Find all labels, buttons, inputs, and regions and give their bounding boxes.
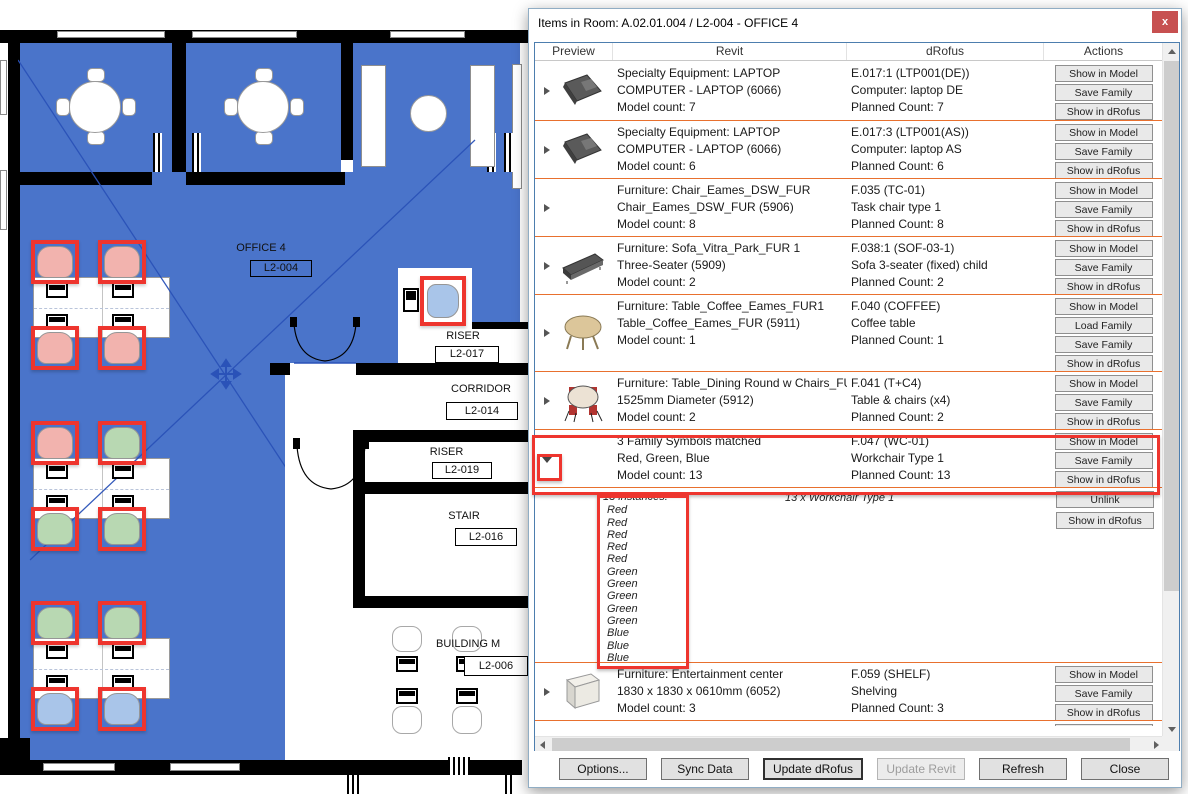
revit-line: Model count: 2 — [617, 409, 847, 426]
chair-annotation-box — [31, 687, 79, 731]
revit-line: Furniture: Chair_Eames_DSW_FUR — [617, 182, 847, 199]
drofus-line: Planned Count: 2 — [851, 274, 1044, 291]
room-number-riser2: L2-019 — [432, 462, 492, 479]
window-bottom-1 — [43, 763, 115, 771]
round-table-1 — [69, 81, 121, 133]
save-family-button[interactable]: Save Family — [1055, 143, 1153, 160]
laptop-icon — [396, 656, 418, 672]
drofus-line: F.041 (T+C4) — [851, 375, 1044, 392]
shelf-preview-icon — [561, 670, 605, 712]
dialog-titlebar[interactable]: Items in Room: A.02.01.004 / L2-004 - OF… — [529, 9, 1181, 39]
window-top-2 — [192, 31, 297, 38]
row-expander-icon[interactable] — [544, 397, 550, 405]
expanded-actions: Unlink Show in dRofus — [1056, 491, 1154, 529]
gray-chair — [392, 626, 422, 652]
laptop-preview-icon — [561, 128, 605, 168]
vertical-scroll-thumb[interactable] — [1164, 61, 1179, 591]
drofus-line: Task chair type 1 — [851, 199, 1044, 216]
chair-annotation-box — [31, 421, 79, 465]
item-row-sofa: Furniture: Sofa_Vitra_Park_FUR 1Three-Se… — [535, 236, 1163, 294]
chair-annotation-box — [31, 326, 79, 370]
coffee-table-preview-icon — [561, 311, 605, 353]
drofus-line: F.059 (SHELF) — [851, 666, 1044, 683]
table1-chair-e — [122, 98, 136, 116]
drofus-line: Planned Count: 8 — [851, 216, 1044, 233]
row-expander-icon[interactable] — [544, 146, 550, 154]
column-header-preview[interactable]: Preview — [535, 43, 613, 60]
door-pocket-2 — [192, 133, 201, 172]
item-row-laptop-as: Specialty Equipment: LAPTOPCOMPUTER - LA… — [535, 120, 1163, 178]
expander-annotation-box — [537, 454, 562, 481]
table2-chair-e — [290, 98, 304, 116]
column-header-revit[interactable]: Revit — [613, 43, 847, 60]
row-expander-icon[interactable] — [544, 329, 550, 337]
mullion-3 — [357, 775, 359, 794]
table1-chair-n — [87, 68, 105, 82]
drofus-line: Planned Count: 2 — [851, 409, 1044, 426]
table1-chair-w — [56, 98, 70, 116]
close-button[interactable]: x — [1152, 11, 1178, 33]
matched-row-annotation-box — [532, 435, 1160, 495]
drofus-line: Shelving — [851, 683, 1044, 700]
revit-line: 1525mm Diameter (5912) — [617, 392, 847, 409]
laptop-icon — [403, 288, 419, 312]
window-bottom-2 — [170, 763, 240, 771]
options-button[interactable]: Options... — [559, 758, 647, 780]
drofus-line: Computer: laptop AS — [851, 141, 1044, 158]
drofus-line: F.038:1 (SOF-03-1) — [851, 240, 1044, 257]
scroll-down-button[interactable] — [1163, 720, 1180, 737]
revit-line: Model count: 6 — [617, 158, 847, 175]
window-top-3 — [390, 31, 465, 38]
room-label-stair: STAIR — [400, 510, 528, 522]
save-family-button[interactable]: Save Family — [1055, 84, 1153, 101]
laptop-icon — [112, 463, 134, 479]
chair-annotation-box — [98, 507, 146, 551]
drofus-line: Computer: laptop DE — [851, 82, 1044, 99]
revit-line: Table_Coffee_Eames_FUR (5911) — [617, 315, 847, 332]
wall-room-divider-1 — [172, 30, 186, 172]
horizontal-scroll-thumb[interactable] — [552, 738, 1130, 751]
scroll-up-button[interactable] — [1163, 43, 1180, 60]
show-in-drofus-button[interactable]: Show in dRofus — [1055, 355, 1153, 372]
revit-line: Model count: 2 — [617, 274, 847, 291]
revit-line: Furniture: Table_Dining Round w Chairs_F… — [617, 375, 847, 392]
wall-room-divider-2 — [341, 30, 353, 160]
room-label-riser2: RISER — [365, 446, 528, 458]
table2-chair-s — [255, 131, 273, 145]
drofus-line: Planned Count: 6 — [851, 158, 1044, 175]
revit-line: COMPUTER - LAPTOP (6066) — [617, 141, 847, 158]
dining-table-preview-icon — [561, 379, 605, 423]
drofus-line: Planned Count: 7 — [851, 99, 1044, 116]
show-in-drofus-button[interactable]: Show in dRofus — [1055, 103, 1153, 120]
room-label-riser1: RISER — [398, 330, 528, 342]
corridor-wall-top — [356, 363, 528, 375]
revit-line: Model count: 7 — [617, 99, 847, 116]
show-in-drofus-button[interactable]: Show in dRofus — [1055, 278, 1153, 295]
floor-plan: OFFICE 4 L2-004 RISER L2-017 CORRIDOR L2… — [0, 0, 528, 794]
show-in-model-button[interactable]: Show in Model — [1055, 65, 1153, 82]
sofa-left — [361, 65, 386, 167]
show-in-model-button[interactable]: Show in Model — [1055, 124, 1153, 141]
show-in-drofus-button[interactable]: Show in dRofus — [1055, 220, 1153, 237]
drofus-line: F.035 (TC-01) — [851, 182, 1044, 199]
row-expander-icon[interactable] — [544, 688, 550, 696]
room-number-building-m: L2-006 — [464, 656, 528, 676]
drofus-line: Sofa 3-seater (fixed) child — [851, 257, 1044, 274]
show-in-model-button[interactable]: Show in Model — [1055, 298, 1153, 315]
gray-chair — [392, 706, 422, 734]
sync-data-button[interactable]: Sync Data — [661, 758, 749, 780]
chair-annotation-box — [420, 276, 466, 326]
room-number-riser1: L2-017 — [435, 346, 499, 363]
item-row-dining-table: Furniture: Table_Dining Round w Chairs_F… — [535, 371, 1163, 429]
chair-annotation-box — [31, 507, 79, 551]
table2-chair-n — [255, 68, 273, 82]
revit-line: Model count: 8 — [617, 216, 847, 233]
close-dialog-button[interactable]: Close — [1081, 758, 1169, 780]
horizontal-scrollbar[interactable] — [535, 736, 1164, 752]
door-pocket-4 — [504, 133, 513, 172]
drofus-line: Planned Count: 1 — [851, 332, 1044, 349]
stair-wall-bottom — [353, 596, 528, 608]
revit-line: Three-Seater (5909) — [617, 257, 847, 274]
room-label-building-m: BUILDING M — [436, 638, 536, 650]
list-header: Preview Revit dRofus Actions — [535, 43, 1163, 61]
room-label-corridor: CORRIDOR — [436, 383, 526, 395]
show-in-drofus-button[interactable]: Show in dRofus — [1055, 162, 1153, 179]
room-number-corridor: L2-014 — [446, 402, 518, 420]
scroll-left-button[interactable] — [540, 741, 545, 749]
drofus-line: Coffee table — [851, 315, 1044, 332]
drofus-line: E.017:1 (LTP001(DE)) — [851, 65, 1044, 82]
item-row-laptop-de: Specialty Equipment: LAPTOPCOMPUTER - LA… — [535, 62, 1163, 120]
save-family-button[interactable]: Save Family — [1055, 336, 1153, 353]
revit-line: Specialty Equipment: LAPTOP — [617, 65, 847, 82]
drofus-line: E.017:3 (LTP001(AS)) — [851, 124, 1044, 141]
laptop-preview-icon — [561, 69, 605, 109]
window-left-2 — [0, 170, 7, 230]
stair-wall-mid — [365, 482, 528, 494]
revit-line: COMPUTER - LAPTOP (6066) — [617, 82, 847, 99]
laptop-icon — [46, 282, 68, 298]
revit-line: 1830 x 1830 x 0610mm (6052) — [617, 683, 847, 700]
sofa-preview-icon — [561, 244, 605, 284]
save-family-button[interactable]: Save Family — [1055, 685, 1153, 702]
room-label-office4: OFFICE 4 — [196, 242, 326, 254]
vertical-scrollbar[interactable] — [1162, 43, 1179, 737]
laptop-icon — [112, 282, 134, 298]
table2-chair-w — [224, 98, 238, 116]
show-in-drofus-button[interactable]: Show in dRofus — [1055, 704, 1153, 721]
mullion-2 — [352, 775, 354, 794]
show-in-model-button[interactable]: Show in Model — [1055, 666, 1153, 683]
instances-annotation-box — [597, 495, 689, 669]
revit-line: Specialty Equipment: LAPTOP — [617, 124, 847, 141]
laptop-icon — [112, 643, 134, 659]
laptop-icon — [456, 688, 478, 704]
drofus-line: Planned Count: 3 — [851, 700, 1044, 717]
refresh-button[interactable]: Refresh — [979, 758, 1067, 780]
column-header-actions[interactable]: Actions — [1044, 43, 1163, 60]
table1-chair-s — [87, 131, 105, 145]
column-header-drofus[interactable]: dRofus — [847, 43, 1044, 60]
room-number-office4: L2-004 — [250, 260, 312, 277]
dialog-title: Items in Room: A.02.01.004 / L2-004 - OF… — [538, 16, 798, 30]
stair-wall-left — [353, 430, 365, 608]
wall-hatch — [448, 757, 470, 775]
chair-annotation-box — [31, 601, 79, 645]
chair-annotation-box — [98, 687, 146, 731]
screen: OFFICE 4 L2-004 RISER L2-017 CORRIDOR L2… — [0, 0, 1188, 794]
row-expander-icon[interactable] — [544, 87, 550, 95]
wall-room1-bottom — [18, 172, 152, 185]
load-family-button[interactable]: Load Family — [1055, 317, 1153, 334]
scrollbar-corner — [1162, 736, 1179, 752]
wall-left — [8, 30, 20, 765]
drofus-line: F.040 (COFFEE) — [851, 298, 1044, 315]
items-in-room-dialog: Items in Room: A.02.01.004 / L2-004 - OF… — [528, 8, 1182, 788]
revit-line: Furniture: Table_Coffee_Eames_FUR1 — [617, 298, 847, 315]
show-in-model-button[interactable]: Show in Model — [1055, 182, 1153, 199]
laptop-icon — [46, 463, 68, 479]
show-in-model-button[interactable]: Show in Model — [1055, 240, 1153, 257]
item-row-task-chair: Furniture: Chair_Eames_DSW_FURChair_Eame… — [535, 178, 1163, 236]
show-in-drofus-button[interactable]: Show in dRofus — [1056, 512, 1154, 529]
drofus-line: Table & chairs (x4) — [851, 392, 1044, 409]
show-in-model-button[interactable] — [1055, 724, 1153, 726]
update-drofus-button[interactable]: Update dRofus — [763, 758, 863, 780]
revit-line: Chair_Eames_DSW_FUR (5906) — [617, 199, 847, 216]
item-row-coffee-table: Furniture: Table_Coffee_Eames_FUR1Table_… — [535, 294, 1163, 371]
save-family-button[interactable]: Save Family — [1055, 201, 1153, 218]
chair-annotation-box — [98, 326, 146, 370]
save-family-button[interactable]: Save Family — [1055, 259, 1153, 276]
corridor-wall-left — [270, 363, 290, 375]
revit-line: Model count: 3 — [617, 700, 847, 717]
chair-annotation-box — [98, 601, 146, 645]
show-in-model-button[interactable]: Show in Model — [1055, 375, 1153, 392]
item-row-clipped — [535, 720, 1163, 726]
window-right-1 — [512, 64, 522, 189]
wall-room2-bottom — [186, 172, 345, 185]
laptop-icon — [46, 643, 68, 659]
chair-annotation-box — [31, 240, 79, 284]
window-left-1 — [0, 60, 7, 115]
row-expander-icon[interactable] — [544, 262, 550, 270]
show-in-drofus-button[interactable]: Show in dRofus — [1055, 413, 1153, 430]
door-pocket-1 — [153, 133, 162, 172]
sofa-right — [470, 65, 495, 167]
item-row-shelving: Furniture: Entertainment center1830 x 18… — [535, 662, 1163, 720]
laptop-icon — [396, 688, 418, 704]
scroll-right-button[interactable] — [1154, 741, 1159, 749]
row-expander-icon[interactable] — [544, 204, 550, 212]
revit-line: Furniture: Sofa_Vitra_Park_FUR 1 — [617, 240, 847, 257]
stair-wall-top — [353, 430, 528, 442]
update-revit-button: Update Revit — [877, 758, 965, 780]
save-family-button[interactable]: Save Family — [1055, 394, 1153, 411]
coffee-table-plan — [410, 95, 447, 132]
round-table-2 — [237, 81, 289, 133]
room-number-stair: L2-016 — [455, 528, 517, 546]
window-top-1 — [57, 31, 165, 38]
mullion-1 — [347, 775, 349, 794]
chair-annotation-box — [98, 240, 146, 284]
mullion-5 — [510, 775, 512, 794]
dialog-footer: Options... Sync Data Update dRofus Updat… — [529, 751, 1181, 787]
gray-chair — [452, 706, 482, 734]
revit-line: Model count: 1 — [617, 332, 847, 349]
mullion-4 — [505, 775, 507, 794]
chair-annotation-box — [98, 421, 146, 465]
